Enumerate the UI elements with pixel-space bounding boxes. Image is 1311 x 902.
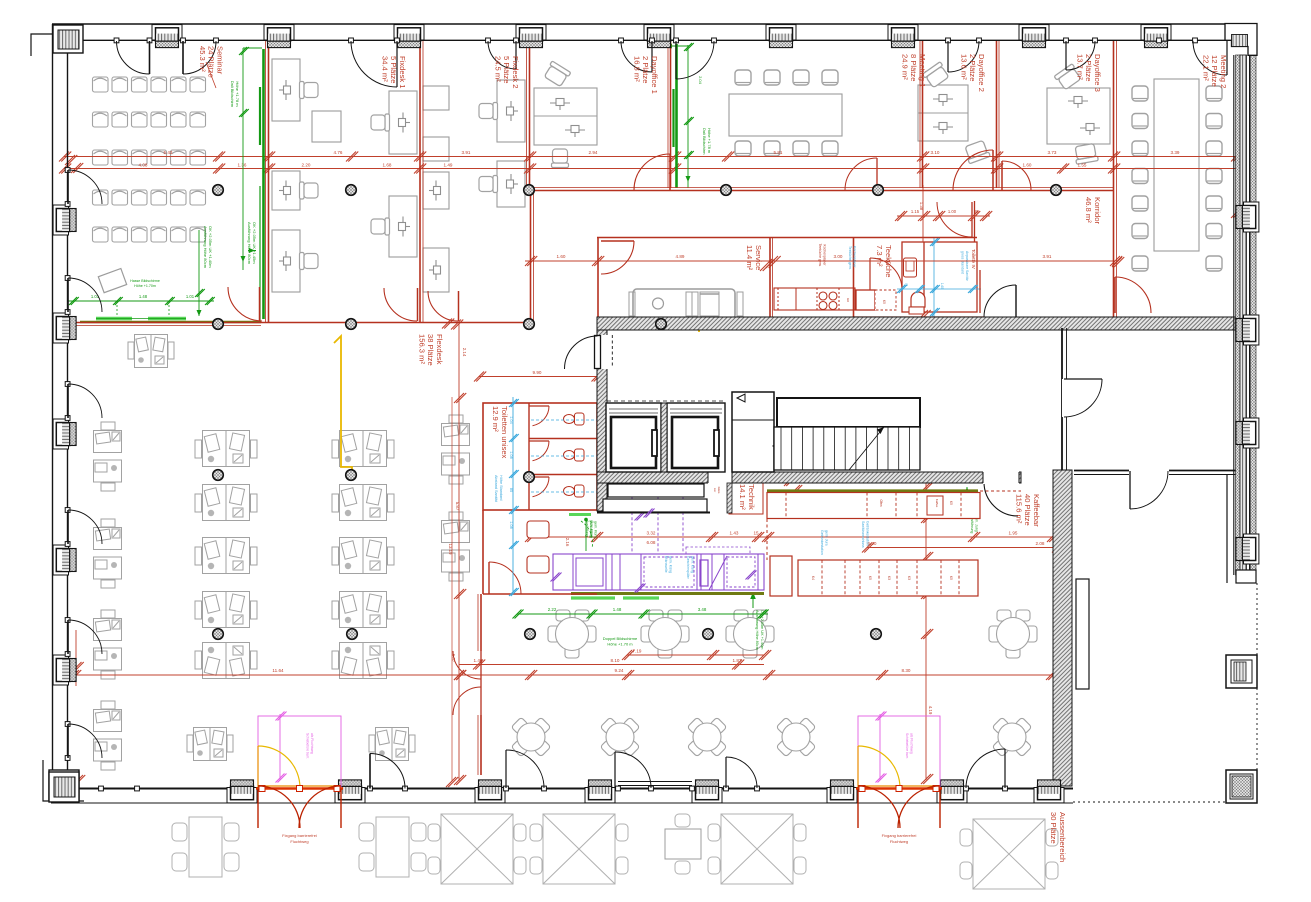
svg-text:5.81: 5.81 bbox=[774, 150, 783, 155]
svg-text:5 Plätze: 5 Plätze bbox=[389, 56, 398, 83]
svg-text:Ausführung Höhe 80cm: Ausführung Höhe 80cm bbox=[755, 610, 759, 650]
svg-text:3.48: 3.48 bbox=[698, 607, 707, 612]
svg-text:Dayoffice 2: Dayoffice 2 bbox=[977, 54, 986, 92]
svg-text:1.15: 1.15 bbox=[911, 209, 920, 214]
svg-text:K3: K3 bbox=[887, 576, 891, 580]
svg-text:Dayoffice 3: Dayoffice 3 bbox=[1093, 54, 1102, 92]
svg-text:Küchenplaner: Küchenplaner bbox=[823, 245, 827, 267]
svg-text:Ausladung: Ausladung bbox=[585, 520, 589, 537]
svg-text:5 Plätze: 5 Plätze bbox=[502, 56, 511, 83]
svg-text:3.10: 3.10 bbox=[931, 150, 940, 155]
svg-text:Hasse Bildschirme: Hasse Bildschirme bbox=[130, 279, 160, 283]
svg-text:8.10: 8.10 bbox=[611, 658, 620, 663]
svg-text:3.39: 3.39 bbox=[1171, 150, 1180, 155]
svg-text:16.8 m²: 16.8 m² bbox=[632, 56, 641, 82]
svg-text:12 Plätze: 12 Plätze bbox=[1210, 55, 1219, 87]
svg-text:Teeküche gem.: Teeküche gem. bbox=[818, 244, 822, 267]
svg-text:40 Plätze: 40 Plätze bbox=[1023, 494, 1032, 526]
svg-text:Toiletten unisex: Toiletten unisex bbox=[500, 406, 509, 459]
svg-text:2.04: 2.04 bbox=[698, 76, 703, 85]
svg-text:gem. Küng: gem. Küng bbox=[590, 520, 594, 537]
svg-text:gem. Küng: gem. Küng bbox=[691, 556, 695, 573]
svg-text:Höhe Standard: Höhe Standard bbox=[499, 475, 503, 501]
svg-text:1.48: 1.48 bbox=[613, 607, 622, 612]
svg-text:Anpassbare Sanitär: Anpassbare Sanitär bbox=[965, 251, 969, 282]
svg-text:K5: K5 bbox=[868, 576, 872, 580]
svg-text:Lür: Lür bbox=[713, 488, 717, 492]
svg-text:Schiebetüre barr.: Schiebetüre barr. bbox=[905, 733, 909, 759]
svg-text:Höhe +1.78 m: Höhe +1.78 m bbox=[235, 81, 240, 107]
svg-text:3.91: 3.91 bbox=[1043, 254, 1052, 259]
svg-text:45: 45 bbox=[904, 283, 908, 287]
svg-text:1.38: 1.38 bbox=[919, 202, 924, 211]
svg-text:11.4 m²: 11.4 m² bbox=[745, 245, 754, 271]
svg-text:45.3 m²: 45.3 m² bbox=[198, 46, 207, 72]
svg-text:Getränkestation: Getränkestation bbox=[820, 530, 824, 555]
svg-text:Ausführung Höhe 80cm: Ausführung Höhe 80cm bbox=[203, 226, 208, 269]
svg-text:24.9 m²: 24.9 m² bbox=[900, 54, 909, 80]
svg-text:9.90: 9.90 bbox=[533, 370, 542, 375]
svg-text:1.87: 1.87 bbox=[733, 658, 742, 663]
svg-text:8 Plätze: 8 Plätze bbox=[909, 54, 918, 81]
svg-text:30 Plätze: 30 Plätze bbox=[1049, 812, 1058, 844]
svg-text:K5: K5 bbox=[949, 501, 953, 505]
svg-text:Seminar: Seminar bbox=[216, 46, 225, 75]
svg-text:als Fluchtweg: als Fluchtweg bbox=[310, 733, 314, 754]
svg-text:Gleis: Gleis bbox=[717, 487, 721, 494]
svg-text:4.76: 4.76 bbox=[334, 150, 343, 155]
svg-text:7.3 m²: 7.3 m² bbox=[875, 245, 884, 267]
svg-text:156.3 m²: 156.3 m² bbox=[417, 334, 426, 364]
svg-text:1.60: 1.60 bbox=[1023, 163, 1032, 168]
svg-text:1.95: 1.95 bbox=[1009, 531, 1018, 536]
svg-text:13.19: 13.19 bbox=[448, 544, 453, 556]
svg-text:1.00: 1.00 bbox=[948, 209, 957, 214]
svg-text:Fixgang barrierefrei: Fixgang barrierefrei bbox=[882, 833, 917, 838]
svg-text:2.94: 2.94 bbox=[589, 150, 598, 155]
svg-text:2 Plätze: 2 Plätze bbox=[1084, 54, 1093, 81]
svg-text:Meeting 2: Meeting 2 bbox=[1219, 55, 1228, 88]
svg-text:46.8 m²: 46.8 m² bbox=[1084, 197, 1093, 223]
svg-text:Fixdesk 1: Fixdesk 1 bbox=[398, 56, 407, 89]
svg-text:5.87: 5.87 bbox=[455, 502, 460, 511]
svg-text:8.30: 8.30 bbox=[902, 668, 911, 673]
svg-text:Fixgang barrierefrei: Fixgang barrierefrei bbox=[282, 833, 317, 838]
svg-text:3.32: 3.32 bbox=[647, 531, 656, 536]
svg-text:2.20: 2.20 bbox=[302, 163, 311, 168]
svg-text:4.19: 4.19 bbox=[928, 706, 933, 715]
svg-text:Dali Bildschirm: Dali Bildschirm bbox=[230, 81, 235, 108]
svg-text:2.16: 2.16 bbox=[565, 538, 570, 547]
svg-text:K5: K5 bbox=[949, 576, 953, 580]
svg-text:Dali Bildschirm: Dali Bildschirm bbox=[702, 128, 707, 155]
svg-text:3.91: 3.91 bbox=[462, 150, 471, 155]
svg-text:24 Plätze: 24 Plätze bbox=[207, 46, 216, 78]
svg-text:Getränkestation: Getränkestation bbox=[866, 521, 870, 546]
svg-text:G0: G0 bbox=[846, 298, 850, 302]
svg-text:K5: K5 bbox=[882, 300, 886, 304]
svg-text:1.65: 1.65 bbox=[940, 283, 944, 290]
svg-text:85: 85 bbox=[509, 488, 513, 492]
svg-text:Sanitäranschluss: Sanitäranschluss bbox=[861, 521, 865, 548]
svg-text:als Fluchtweg: als Fluchtweg bbox=[910, 733, 914, 754]
svg-text:K4: K4 bbox=[811, 576, 815, 580]
svg-text:Schiebetüre barr.: Schiebetüre barr. bbox=[306, 733, 310, 759]
svg-text:Service: Service bbox=[754, 245, 763, 270]
svg-text:22.1 m²: 22.1 m² bbox=[1201, 55, 1210, 81]
svg-text:Höhe +1.70m: Höhe +1.70m bbox=[134, 284, 156, 288]
svg-text:Ofen: Ofen bbox=[879, 500, 883, 507]
svg-text:115.6 m²: 115.6 m² bbox=[1014, 494, 1023, 524]
svg-text:K3: K3 bbox=[907, 576, 911, 580]
svg-text:Doppel Bildschirme: Doppel Bildschirme bbox=[603, 636, 638, 641]
svg-text:OK +2.05m UK +1.40m: OK +2.05m UK +1.40m bbox=[208, 226, 213, 268]
svg-text:Teeküche: Teeküche bbox=[884, 245, 893, 278]
svg-text:Kaffee: Kaffee bbox=[935, 499, 939, 508]
svg-text:Meeting 1: Meeting 1 bbox=[918, 54, 927, 87]
svg-text:38 Plätze: 38 Plätze bbox=[426, 334, 435, 366]
svg-text:2.08: 2.08 bbox=[1036, 541, 1045, 546]
svg-text:Küchenplaner: Küchenplaner bbox=[853, 246, 857, 268]
svg-text:1.01: 1.01 bbox=[186, 294, 195, 299]
svg-text:9.24: 9.24 bbox=[615, 668, 624, 673]
svg-text:Mikrowelle: Mikrowelle bbox=[664, 556, 668, 573]
svg-text:1.36: 1.36 bbox=[238, 163, 247, 168]
svg-text:15: 15 bbox=[753, 531, 759, 536]
svg-text:Fluchtweg: Fluchtweg bbox=[290, 839, 308, 844]
svg-text:Technik: Technik bbox=[747, 484, 756, 510]
svg-text:gem. Jura: gem. Jura bbox=[825, 530, 829, 546]
svg-text:Ausführung Höhe 80cm: Ausführung Höhe 80cm bbox=[247, 222, 252, 265]
svg-text:gem. Küng: gem. Küng bbox=[669, 556, 673, 573]
svg-text:3.73: 3.73 bbox=[1048, 150, 1057, 155]
svg-text:OK +2.05m UK +1.45m: OK +2.05m UK +1.45m bbox=[252, 222, 257, 264]
svg-text:1.68: 1.68 bbox=[383, 163, 392, 168]
svg-text:Fixdesk 2: Fixdesk 2 bbox=[511, 56, 520, 89]
svg-text:1.43: 1.43 bbox=[730, 531, 739, 536]
svg-text:1.60: 1.60 bbox=[557, 254, 566, 259]
svg-text:34.4 m²: 34.4 m² bbox=[380, 56, 389, 82]
svg-text:Korridor: Korridor bbox=[1093, 197, 1102, 224]
svg-text:2.22: 2.22 bbox=[548, 607, 557, 612]
svg-text:2.14: 2.14 bbox=[462, 348, 467, 357]
svg-text:2 Plätze: 2 Plätze bbox=[968, 54, 977, 81]
svg-text:85: 85 bbox=[975, 209, 980, 214]
svg-text:24.5 m²: 24.5 m² bbox=[493, 56, 502, 82]
svg-text:1.49: 1.49 bbox=[444, 163, 453, 168]
svg-text:3.00: 3.00 bbox=[834, 254, 843, 259]
svg-text:Höhe +1.70 m: Höhe +1.70 m bbox=[607, 642, 633, 647]
svg-text:4.08: 4.08 bbox=[139, 163, 148, 168]
svg-text:Teeküche gem.: Teeküche gem. bbox=[848, 246, 852, 270]
svg-text:13.7 m²: 13.7 m² bbox=[1075, 54, 1084, 80]
svg-text:Toilette IV: Toilette IV bbox=[971, 249, 976, 269]
svg-text:1.08: 1.08 bbox=[509, 521, 513, 528]
svg-text:5.43: 5.43 bbox=[164, 150, 173, 155]
svg-text:14.1 m²: 14.1 m² bbox=[738, 484, 747, 510]
svg-text:6.08: 6.08 bbox=[647, 540, 656, 545]
svg-text:1.55: 1.55 bbox=[1078, 163, 1087, 168]
svg-text:Dayoffice 1: Dayoffice 1 bbox=[650, 56, 659, 94]
svg-text:13.6 m²: 13.6 m² bbox=[959, 54, 968, 80]
svg-text:Fluchtweg: Fluchtweg bbox=[890, 839, 908, 844]
svg-text:7.19: 7.19 bbox=[633, 649, 642, 654]
svg-text:2 Plätze: 2 Plätze bbox=[641, 56, 650, 83]
svg-text:Flexdesk: Flexdesk bbox=[435, 334, 444, 365]
svg-text:Abstand Sanität: Abstand Sanität bbox=[494, 475, 498, 503]
svg-text:11.64: 11.64 bbox=[272, 668, 284, 673]
svg-text:gross Standard: gross Standard bbox=[961, 251, 965, 274]
svg-text:12.9 m²: 12.9 m² bbox=[491, 406, 500, 432]
svg-text:Kaffeebar: Kaffeebar bbox=[1032, 494, 1041, 527]
svg-text:Aussenbereich: Aussenbereich bbox=[1058, 812, 1067, 862]
svg-text:Geschirrspüler: Geschirrspüler bbox=[686, 556, 690, 580]
svg-text:1.48: 1.48 bbox=[139, 294, 148, 299]
svg-text:Höhe +1.78 m: Höhe +1.78 m bbox=[707, 128, 712, 154]
svg-text:4.89: 4.89 bbox=[676, 254, 685, 259]
